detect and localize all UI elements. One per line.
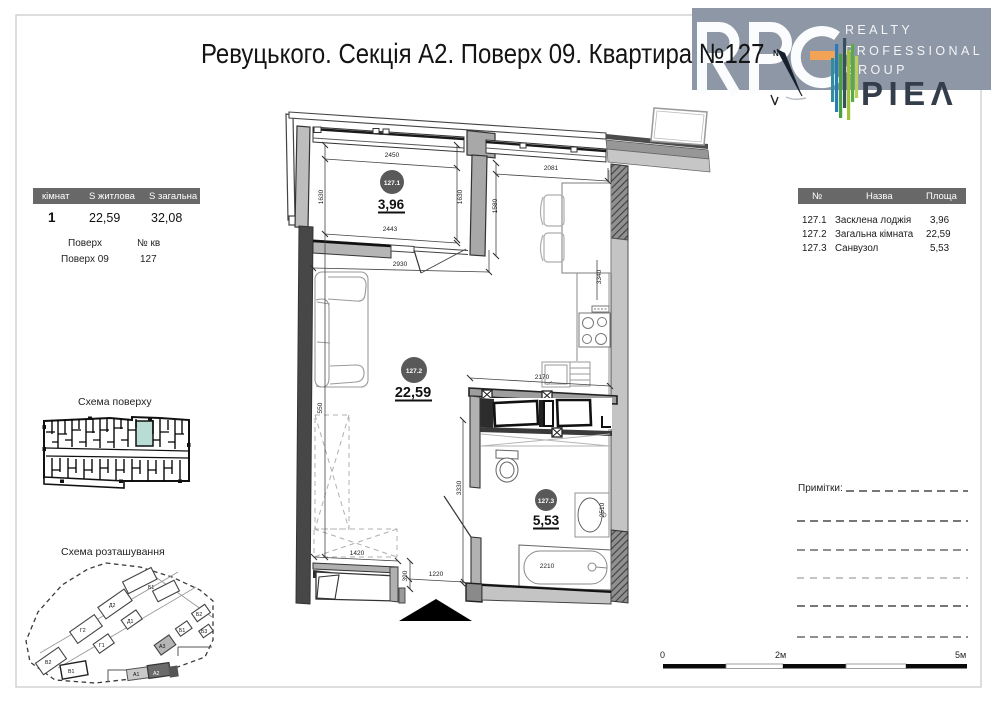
- svg-text:Б1: Б1: [179, 628, 185, 634]
- svg-text:5,53: 5,53: [533, 513, 560, 528]
- svg-text:127.3: 127.3: [538, 498, 555, 505]
- svg-text:3330: 3330: [456, 480, 463, 495]
- svg-text:PROFESSIONAL: PROFESSIONAL: [845, 44, 983, 58]
- svg-text:1220: 1220: [429, 571, 444, 578]
- svg-text:2510: 2510: [599, 502, 606, 517]
- svg-text:Д1: Д1: [127, 619, 134, 625]
- svg-text:Б2: Б2: [196, 612, 202, 618]
- svg-text:3,96: 3,96: [378, 197, 405, 212]
- svg-text:Г2: Г2: [80, 628, 86, 634]
- svg-text:127.2: 127.2: [406, 368, 423, 375]
- svg-text:Д2: Д2: [109, 603, 116, 609]
- svg-text:550: 550: [317, 402, 324, 413]
- svg-text:А3: А3: [159, 644, 165, 650]
- svg-text:А2: А2: [153, 671, 159, 677]
- svg-text:2930: 2930: [393, 261, 408, 268]
- svg-text:1630: 1630: [457, 189, 464, 204]
- svg-text:1420: 1420: [350, 550, 365, 557]
- svg-text:РІЕΛ: РІЕΛ: [861, 75, 958, 112]
- svg-text:2450: 2450: [385, 152, 400, 159]
- svg-text:Б3: Б3: [201, 629, 207, 635]
- svg-text:2443: 2443: [383, 226, 398, 233]
- svg-text:1630: 1630: [318, 189, 325, 204]
- svg-text:127.1: 127.1: [384, 180, 401, 187]
- svg-text:Г1: Г1: [99, 643, 105, 649]
- svg-text:А1: А1: [133, 672, 139, 678]
- svg-text:22,59: 22,59: [395, 385, 431, 401]
- svg-text:1580: 1580: [492, 198, 499, 213]
- svg-text:2210: 2210: [540, 563, 555, 570]
- svg-text:390: 390: [402, 570, 409, 581]
- svg-text:В1: В1: [68, 669, 74, 675]
- svg-text:3340: 3340: [596, 269, 603, 284]
- svg-text:REALTY: REALTY: [845, 23, 913, 37]
- svg-text:2081: 2081: [544, 165, 559, 172]
- svg-text:2170: 2170: [535, 374, 550, 381]
- svg-text:Б1: Б1: [148, 585, 154, 591]
- svg-text:В2: В2: [45, 660, 51, 666]
